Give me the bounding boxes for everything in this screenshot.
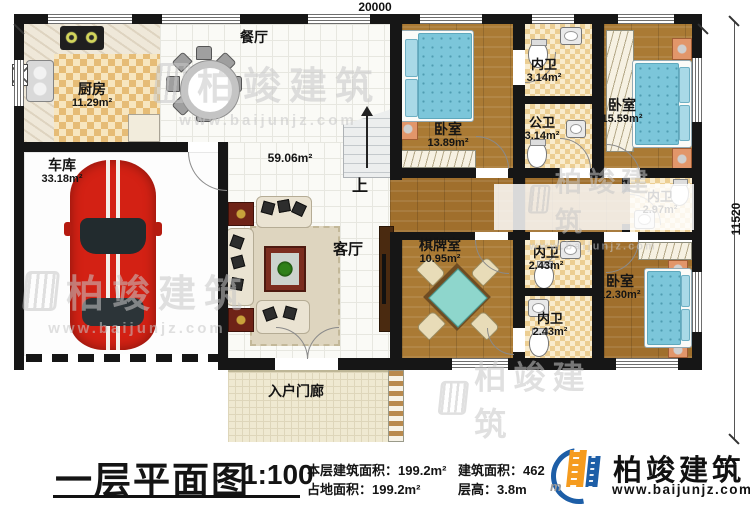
window [692, 272, 702, 332]
stat-row: 本层建筑面积：199.2m² [307, 461, 446, 480]
wall [640, 168, 692, 178]
room-area: 3.14m² [525, 130, 560, 142]
mattress [418, 33, 472, 119]
wall [525, 96, 592, 104]
room-name: 餐厅 [240, 30, 268, 45]
burner-icon [65, 31, 78, 44]
wall [513, 352, 525, 358]
window [48, 14, 132, 24]
pillow [405, 79, 418, 117]
room-label-bath-low: 内卫 2.43m² [533, 312, 568, 338]
room-label-garage: 车库 33.18m² [42, 158, 83, 185]
pillow [679, 105, 690, 141]
wardrobe-icon [400, 150, 476, 168]
room-area: 15.59m² [602, 113, 643, 125]
room-name: 厨房 [72, 82, 112, 97]
stat-label: 层高： [458, 482, 497, 497]
sofa-pillow [230, 277, 244, 291]
floor-plan-drawing: 厨房 11.29m² 餐厅 车库 33.18m² 59.06m² 客厅 上 卧室… [0, 0, 750, 445]
pillow [679, 67, 690, 103]
window [692, 58, 702, 122]
room-area: 2.43m² [533, 326, 568, 338]
room-area: 11.29m² [72, 97, 112, 109]
stats-column-right: 建筑面积：462 层高：3.8m [458, 461, 545, 499]
sink-icon [560, 27, 582, 45]
window [452, 358, 508, 370]
chair-icon [196, 46, 212, 60]
side-table-icon [228, 202, 254, 226]
window [616, 358, 678, 370]
room-area: 59.06m² [268, 152, 313, 165]
toilet-icon [527, 142, 547, 168]
wall [14, 142, 150, 152]
pillow [405, 39, 418, 77]
side-table-icon [228, 308, 254, 332]
drawing-scale: 1:100 [242, 459, 314, 491]
wall [558, 232, 592, 240]
room-name: 卧室 [428, 122, 469, 137]
porch-steps [388, 370, 404, 442]
stairs-direction-arrow [366, 116, 368, 168]
pillow [681, 309, 690, 341]
stairs-arrow-head [361, 106, 373, 116]
burner-icon [85, 31, 98, 44]
chair-icon [166, 76, 180, 92]
room-name: 客厅 [333, 242, 363, 259]
room-name: 棋牌室 [419, 238, 461, 253]
kitchen-sink-icon [26, 60, 54, 102]
room-label-bedroom1: 卧室 13.89m² [428, 122, 469, 149]
room-name: 入户门廊 [268, 384, 324, 399]
stat-label: 本层建筑面积： [307, 463, 398, 478]
window [162, 14, 240, 24]
room-label-chess: 棋牌室 10.95m² [419, 238, 461, 265]
fridge-icon [128, 114, 160, 142]
room-name: 车库 [42, 158, 83, 173]
nightstand-icon [672, 148, 692, 170]
closet-icon [638, 242, 692, 260]
stats-column-left: 本层建筑面积：199.2m² 占地面积：199.2m² [307, 461, 446, 499]
wall [525, 232, 530, 240]
room-label-porch: 入户门廊 [268, 384, 324, 399]
stat-value: 199.2m² [372, 482, 420, 497]
room-name: 内卫 [533, 312, 568, 326]
window [618, 14, 674, 24]
room-area: 3.14m² [527, 72, 562, 84]
stat-row: 层高：3.8m [458, 480, 545, 499]
mattress [647, 271, 681, 345]
room-label-bath-public: 公卫 3.14m² [525, 116, 560, 142]
wall [513, 168, 560, 178]
room-label-bedroom2: 卧室 15.59m² [602, 98, 643, 125]
dimension-top-label: 20000 [350, 0, 400, 14]
wall [390, 232, 402, 358]
window [308, 14, 370, 24]
wall [513, 240, 525, 328]
room-area: 33.18m² [42, 173, 83, 185]
car-rear-window [82, 298, 144, 326]
double-bed-icon [644, 268, 692, 348]
floor-plan-page: 厨房 11.29m² 餐厅 车库 33.18m² 59.06m² 客厅 上 卧室… [0, 0, 750, 508]
room-name: 公卫 [525, 116, 560, 130]
wall [338, 358, 390, 370]
wall [590, 168, 604, 178]
room-label-living: 客厅 [333, 242, 363, 259]
room-area: 2.43m² [529, 260, 564, 272]
stat-row: 建筑面积：462 [458, 461, 545, 480]
room-name: 卧室 [602, 98, 643, 113]
brand-logo-icon: m [550, 443, 610, 503]
stat-label: 建筑面积： [458, 463, 523, 478]
window [14, 60, 24, 106]
wall [525, 288, 592, 296]
brand-url: www.baijunjz.com [612, 482, 750, 497]
title-underline [53, 495, 300, 498]
wall [508, 232, 513, 240]
stove-icon [60, 26, 104, 50]
wall [218, 358, 275, 370]
wall [513, 14, 525, 50]
room-name: 内卫 [529, 246, 564, 260]
wardrobe-icon [606, 30, 634, 152]
room-name: 内卫 [527, 58, 562, 72]
room-label-bath-mid: 内卫 2.43m² [529, 246, 564, 272]
pillow [681, 275, 690, 307]
sofa-pillow [277, 199, 291, 213]
mahjong-table-set [425, 265, 489, 329]
room-area: 13.89m² [428, 137, 469, 149]
room-label-dining: 餐厅 [240, 30, 268, 45]
plant-icon [277, 261, 293, 277]
room-porch-floor [228, 370, 388, 442]
round-table-icon [181, 61, 239, 119]
stairs-up-label: 上 [352, 172, 368, 196]
car-mirror [64, 222, 72, 236]
room-area: 12.30m² [600, 289, 641, 301]
watermark-band [494, 184, 694, 230]
stat-value: 199.2m² [398, 463, 446, 478]
dimension-right-label: 11520 [729, 197, 743, 241]
garage-door-dashed [26, 354, 218, 362]
window [532, 14, 574, 24]
stat-row: 占地面积：199.2m² [307, 480, 446, 499]
nightstand-icon [672, 38, 692, 60]
stat-value: 462 [523, 463, 545, 478]
room-name: 卧室 [600, 274, 641, 289]
stat-value: 3.8m [497, 482, 527, 497]
coffee-table-icon [264, 246, 306, 292]
wall [390, 14, 402, 180]
wall [592, 14, 604, 168]
stat-label: 占地面积： [307, 482, 372, 497]
sink-icon [566, 120, 586, 138]
double-bed-icon [400, 30, 474, 122]
room-label-bath-top: 内卫 3.14m² [527, 58, 562, 84]
car-icon [70, 160, 156, 350]
room-area: 10.95m² [419, 253, 461, 265]
wall [402, 168, 476, 178]
wall [638, 232, 692, 240]
room-label-kitchen: 厨房 11.29m² [72, 82, 112, 109]
window [420, 14, 482, 24]
room-label-bedroom3: 卧室 12.30m² [600, 274, 641, 301]
logo-m-mark: m [550, 479, 562, 494]
dining-table-set [169, 49, 237, 117]
wall [150, 142, 188, 152]
car-windshield [80, 218, 146, 254]
watermark-logo-icon [438, 381, 470, 415]
entrance-threshold [275, 358, 338, 370]
living-area-label: 59.06m² [268, 152, 313, 165]
car-mirror [154, 222, 162, 236]
